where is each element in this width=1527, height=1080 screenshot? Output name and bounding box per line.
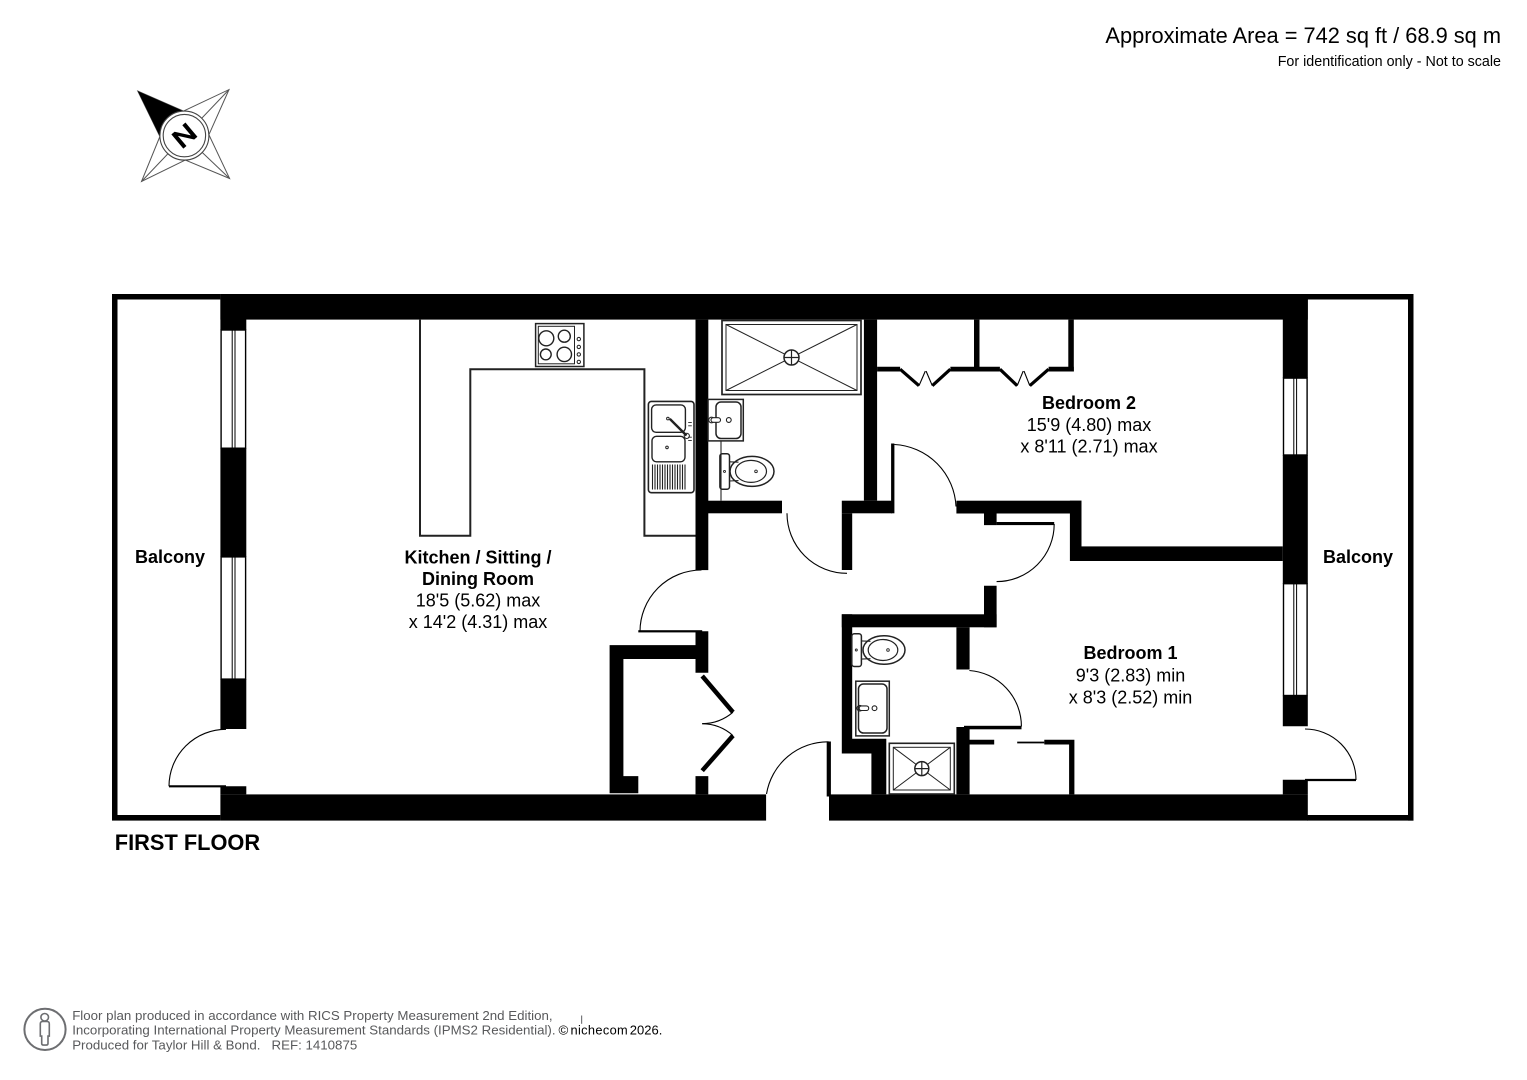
svg-text:Balcony: Balcony xyxy=(1323,547,1393,567)
svg-text:Dining Room: Dining Room xyxy=(422,569,534,589)
svg-text:©: © xyxy=(559,1023,569,1038)
svg-text:Bedroom 1: Bedroom 1 xyxy=(1083,643,1177,663)
svg-text:Produced for Taylor Hill & Bon: Produced for Taylor Hill & Bond. REF: 14… xyxy=(72,1038,357,1053)
svg-text:Balcony: Balcony xyxy=(135,547,205,567)
svg-text:2026.: 2026. xyxy=(630,1023,663,1038)
svg-text:FIRST FLOOR: FIRST FLOOR xyxy=(115,830,261,855)
svg-text:Floor plan produced in accorda: Floor plan produced in accordance with R… xyxy=(72,1008,552,1023)
svg-text:Kitchen / Sitting /: Kitchen / Sitting / xyxy=(405,548,552,568)
svg-text:For identification only - Not: For identification only - Not to scale xyxy=(1278,54,1501,70)
svg-text:nichecom: nichecom xyxy=(571,1023,629,1038)
svg-text:18'5 (5.62) max: 18'5 (5.62) max xyxy=(416,591,541,611)
svg-text:Bedroom 2: Bedroom 2 xyxy=(1042,393,1136,413)
svg-text:Approximate Area = 742 sq ft /: Approximate Area = 742 sq ft / 68.9 sq m xyxy=(1105,23,1501,48)
svg-text:x 8'11 (2.71) max: x 8'11 (2.71) max xyxy=(1020,436,1157,456)
svg-text:15'9 (4.80) max: 15'9 (4.80) max xyxy=(1027,415,1152,435)
svg-text:Incorporating International Pr: Incorporating International Property Mea… xyxy=(72,1023,555,1038)
svg-text:x 14'2 (4.31) max: x 14'2 (4.31) max xyxy=(409,612,548,632)
svg-text:x 8'3 (2.52) min: x 8'3 (2.52) min xyxy=(1069,688,1193,708)
svg-text:9'3 (2.83) min: 9'3 (2.83) min xyxy=(1076,666,1186,686)
